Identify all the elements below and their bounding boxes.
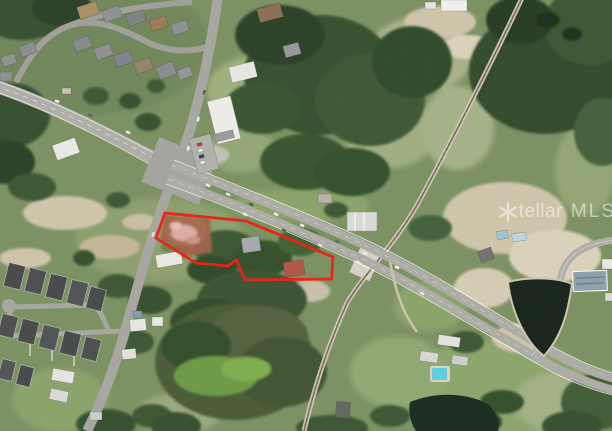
aerial-screenshot: tellar MLS bbox=[0, 0, 612, 431]
photo-grain bbox=[0, 0, 612, 431]
aerial-map bbox=[0, 0, 612, 431]
